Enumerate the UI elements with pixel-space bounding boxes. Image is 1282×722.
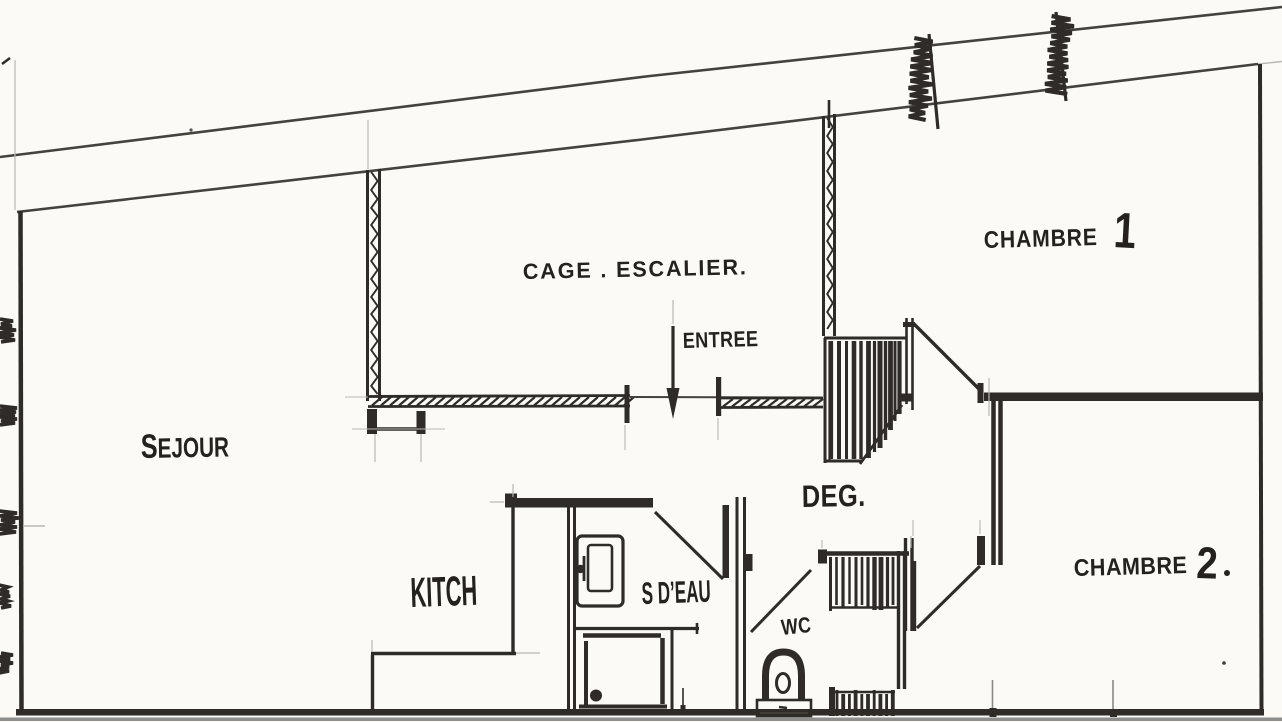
svg-text:DEG.: DEG. — [802, 479, 866, 515]
svg-text:CHAMBRE: CHAMBRE — [983, 224, 1098, 254]
svg-text:CHAMBRE: CHAMBRE — [1073, 551, 1187, 581]
svg-text:SEJOUR: SEJOUR — [140, 427, 229, 466]
svg-text:KITCH: KITCH — [410, 568, 478, 617]
svg-text:ENTREE: ENTREE — [683, 327, 759, 353]
svg-text:2: 2 — [1196, 537, 1219, 588]
svg-text:WC: WC — [780, 613, 812, 640]
svg-text:CAGE . ESCALIER.: CAGE . ESCALIER. — [523, 254, 748, 284]
svg-text:S D’EAU: S D’EAU — [641, 574, 711, 611]
svg-text:1: 1 — [1112, 202, 1137, 259]
